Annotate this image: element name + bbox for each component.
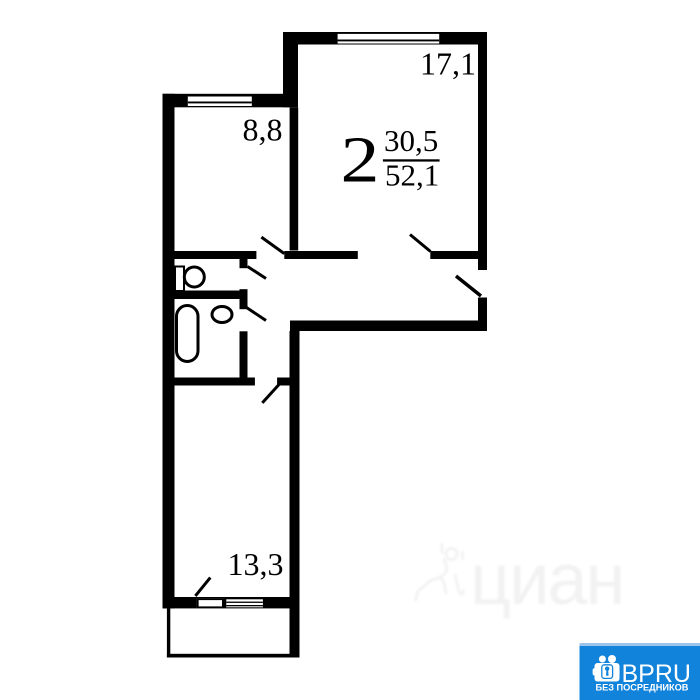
svg-text:2: 2 xyxy=(341,123,380,196)
svg-text:БЕЗ ПОСРЕДНИКОВ: БЕЗ ПОСРЕДНИКОВ xyxy=(596,683,689,693)
svg-text:52,1: 52,1 xyxy=(385,158,439,193)
svg-text:30,5: 30,5 xyxy=(384,123,438,158)
svg-text:13,3: 13,3 xyxy=(228,546,284,582)
svg-text:17,1: 17,1 xyxy=(420,46,476,82)
svg-text:циан: циан xyxy=(470,540,623,620)
svg-text:8,8: 8,8 xyxy=(243,111,283,147)
